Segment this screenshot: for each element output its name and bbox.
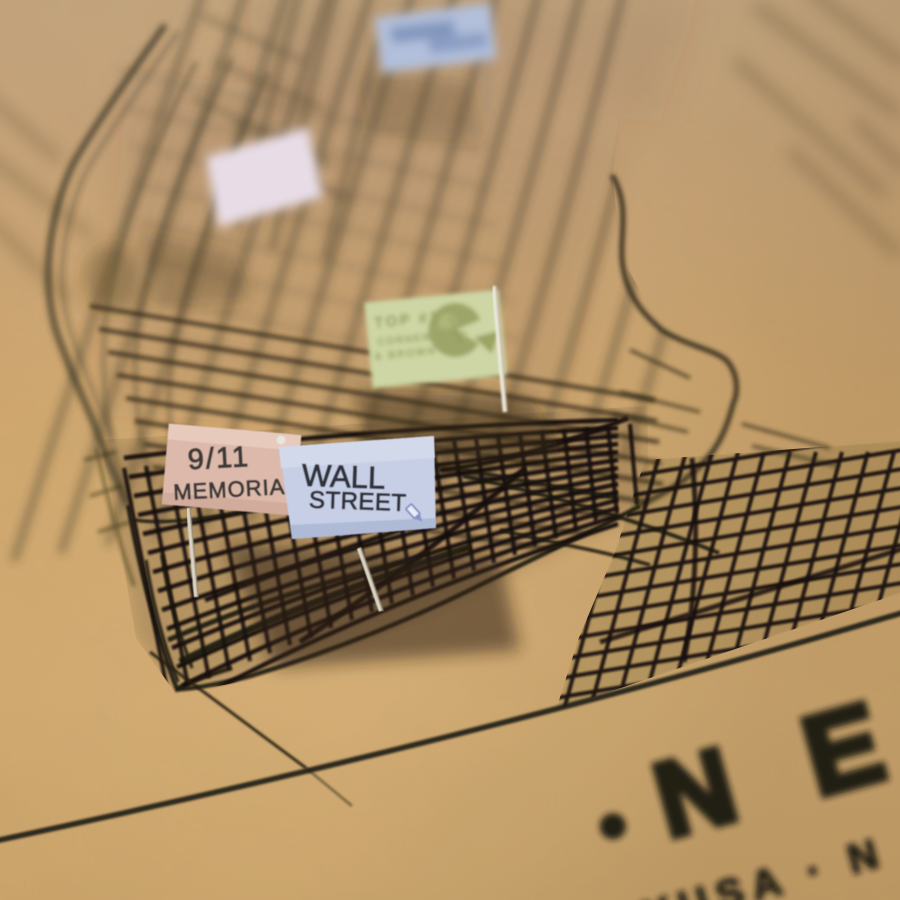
svg-text:9/11: 9/11 <box>187 441 251 476</box>
svg-text:STREET: STREET <box>309 487 408 517</box>
